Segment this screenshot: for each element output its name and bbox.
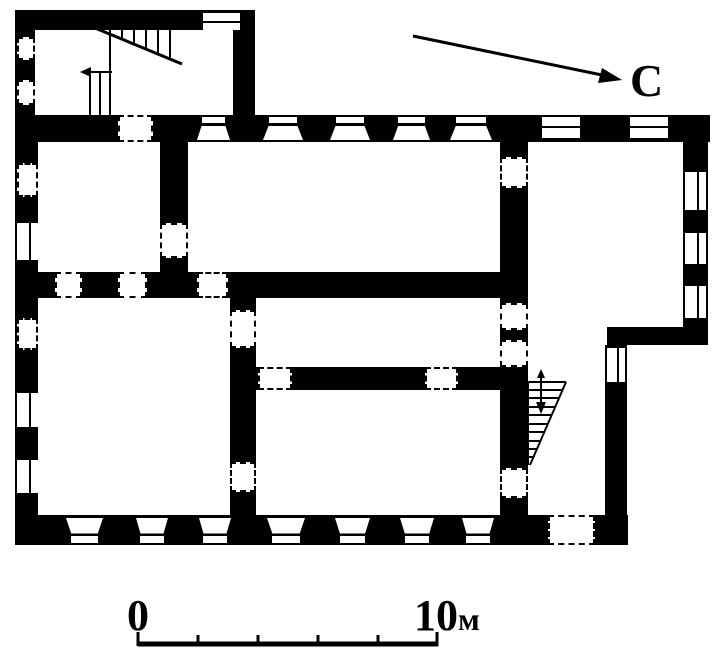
scale-bar (138, 632, 438, 646)
scale-end-unit: м (458, 601, 480, 637)
stairwell-stairs (528, 369, 566, 465)
scale-end-label: 10м (414, 594, 480, 638)
annex-stairs (80, 28, 182, 117)
scale-end-number: 10 (414, 591, 458, 640)
scale-zero-label: 0 (118, 594, 158, 638)
north-label: С (630, 58, 663, 104)
north-arrow (413, 36, 622, 83)
floor-plan-figure: С 0 10м (0, 0, 726, 665)
plan-linework (0, 0, 726, 665)
